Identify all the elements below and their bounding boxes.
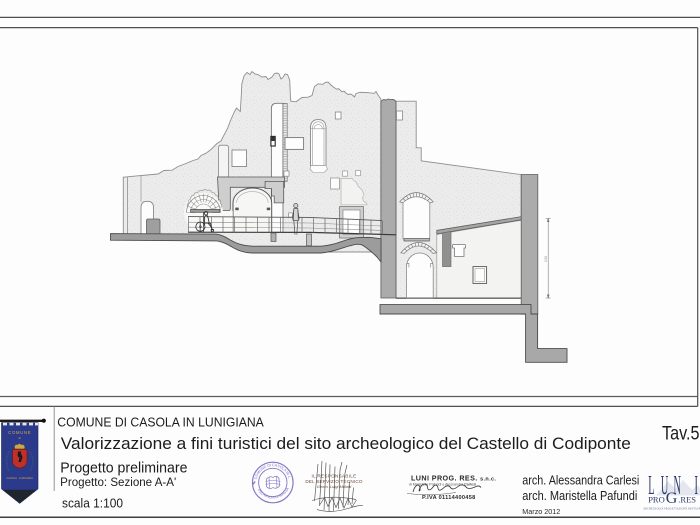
svg-text:COMUNE DI CASOLA IN LUNIGIANA: COMUNE DI CASOLA IN LUNIGIANA: [57, 414, 264, 429]
svg-text:Progetto: Sezione A-A': Progetto: Sezione A-A': [60, 477, 176, 489]
svg-text:P.IVA 01114400458: P.IVA 01114400458: [422, 495, 476, 501]
svg-text:di: di: [19, 436, 22, 440]
svg-text:G: G: [666, 490, 678, 507]
svg-text:ARCHEOLOGIA PROGETTAZIONE REST: ARCHEOLOGIA PROGETTAZIONE RESTAURO: [643, 507, 700, 510]
svg-text:Progetto preliminare: Progetto preliminare: [60, 460, 187, 476]
svg-text:Marzo 2012: Marzo 2012: [522, 507, 560, 516]
svg-text:arch. Maristella Pafundi: arch. Maristella Pafundi: [522, 489, 637, 503]
svg-text:PRO: PRO: [648, 494, 665, 504]
svg-text:IL RESPONSABILE: IL RESPONSABILE: [312, 474, 357, 479]
svg-text:scala 1:100: scala 1:100: [62, 497, 123, 511]
svg-text:Valorizzazione a fini turistic: Valorizzazione a fini turistici del sito…: [61, 434, 631, 453]
svg-text:CASOLA · LUNIGIANA: CASOLA · LUNIGIANA: [6, 476, 33, 480]
svg-text:Tav.5: Tav.5: [662, 422, 700, 444]
svg-text:COMUNE: COMUNE: [8, 430, 31, 435]
svg-text:arch. Alessandra Carlesi: arch. Alessandra Carlesi: [522, 474, 639, 488]
svg-text:2.50: 2.50: [544, 256, 548, 262]
svg-text:.RES: .RES: [678, 494, 696, 504]
